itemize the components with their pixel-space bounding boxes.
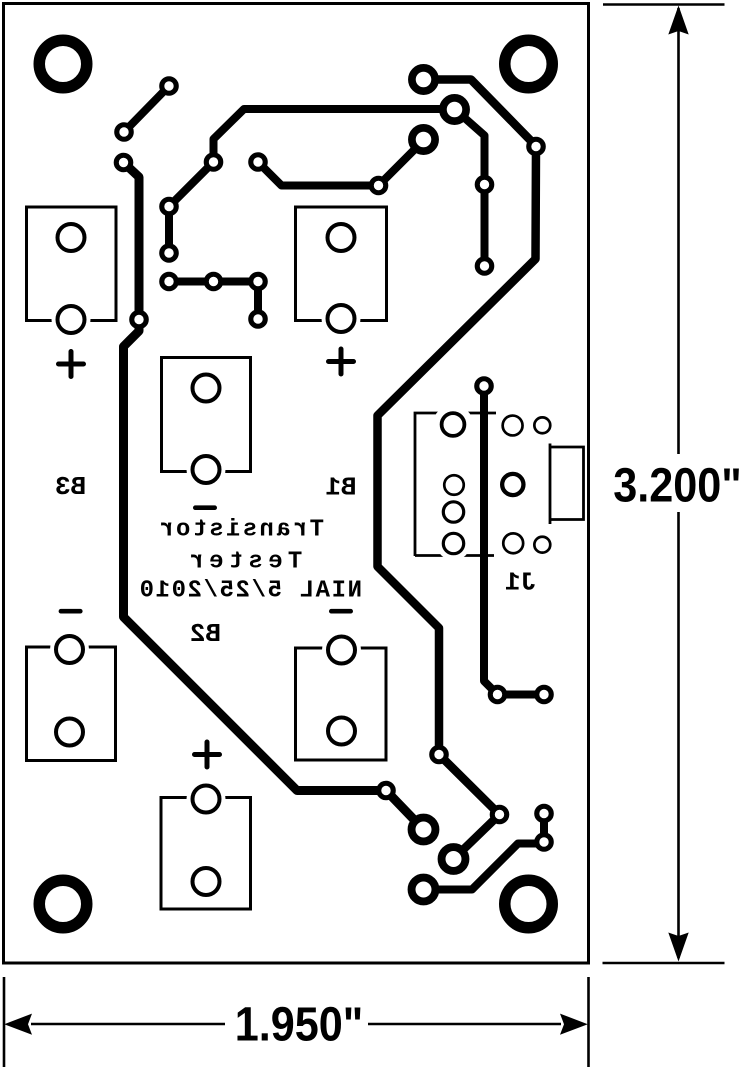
svg-text:Transistor: Transistor bbox=[157, 516, 324, 543]
svg-text:3.200": 3.200" bbox=[613, 458, 742, 512]
svg-text:B3: B3 bbox=[55, 472, 86, 502]
svg-text:B1: B1 bbox=[325, 472, 356, 502]
svg-text:NIAL 5/25/2010: NIAL 5/25/2010 bbox=[138, 577, 362, 604]
svg-text:Tester: Tester bbox=[184, 548, 302, 575]
svg-text:1.950": 1.950" bbox=[235, 997, 364, 1051]
svg-text:J1: J1 bbox=[505, 567, 536, 597]
svg-text:B2: B2 bbox=[190, 619, 221, 649]
